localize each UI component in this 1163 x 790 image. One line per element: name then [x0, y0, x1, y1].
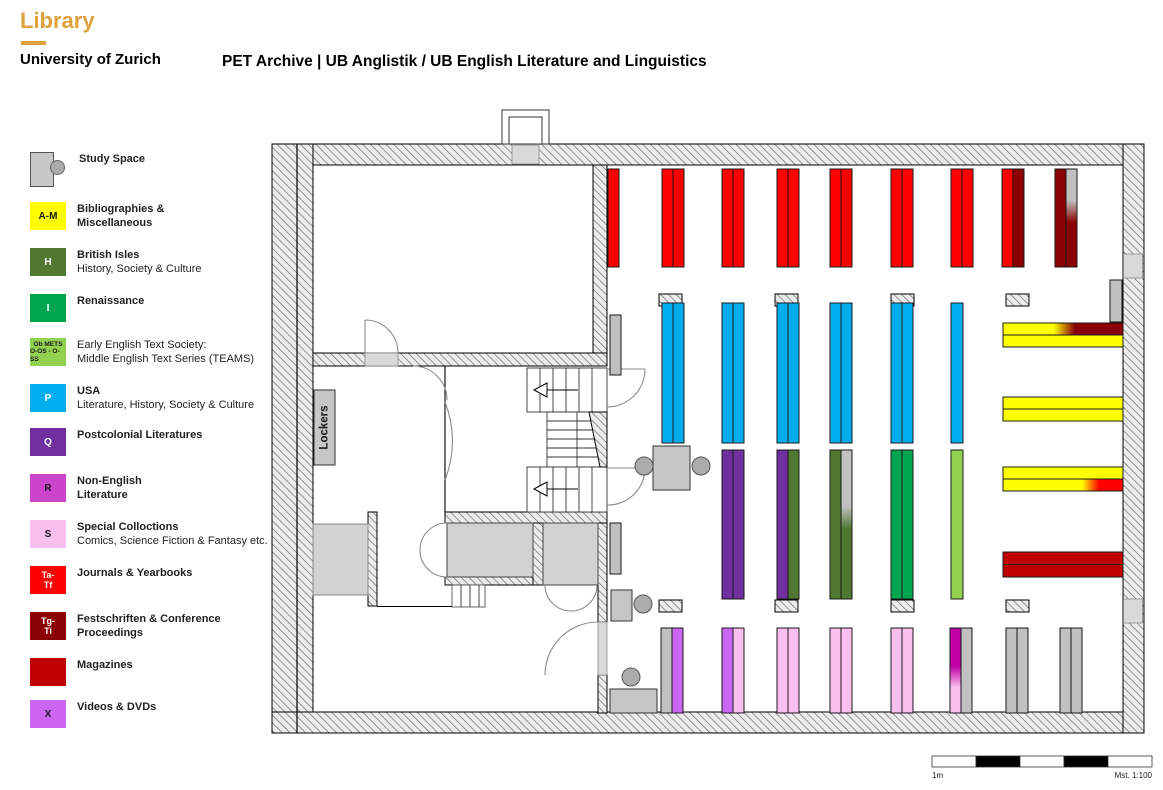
- shelf-row-right: [1003, 280, 1123, 577]
- scale-left-label: 1m: [932, 771, 943, 780]
- stairwell: [527, 368, 607, 512]
- step-stub: [452, 585, 485, 607]
- compact-shelving: [313, 524, 368, 595]
- lockers-label: Lockers: [319, 405, 331, 449]
- window-niche: [1124, 599, 1143, 623]
- storage-room: [447, 523, 533, 577]
- storage-room: [543, 523, 598, 585]
- room-door: [365, 320, 398, 366]
- shelf-row-bottom: [661, 628, 1082, 713]
- shelf-row-usa: [610, 303, 963, 443]
- lockers: Lockers: [314, 390, 335, 465]
- floor-plan: Lockers: [0, 0, 1163, 790]
- study-furniture: [610, 446, 710, 713]
- scale-bar: 1m Mst. 1:100: [932, 756, 1153, 780]
- scale-right-label: Mst. 1:100: [1115, 771, 1153, 780]
- window-niche: [1124, 254, 1143, 278]
- shelf-row-journals: [608, 169, 1077, 267]
